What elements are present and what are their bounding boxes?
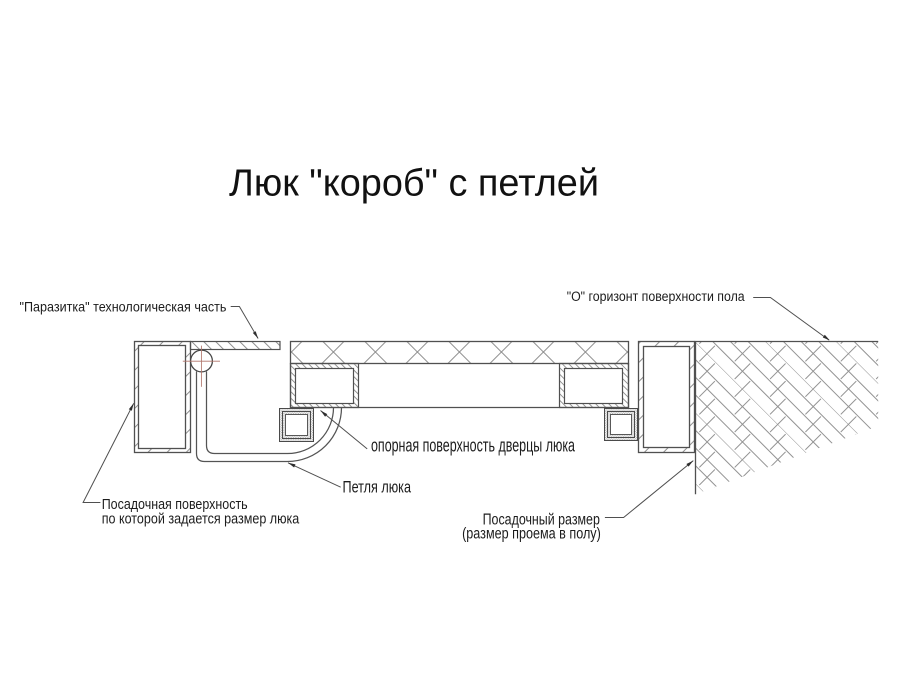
svg-text:"О" горизонт поверхности пола: "О" горизонт поверхности пола xyxy=(567,289,745,304)
svg-text:"Паразитка" технологическая ча: "Паразитка" технологическая часть xyxy=(20,299,227,315)
svg-text:Люк "короб" с петлей: Люк "короб" с петлей xyxy=(229,162,599,204)
svg-text:Петля люка: Петля люка xyxy=(343,479,412,497)
svg-text:опорная поверхность дверцы люк: опорная поверхность дверцы люка xyxy=(371,435,576,455)
svg-text:по которой задается размер люк: по которой задается размер люка xyxy=(102,511,300,528)
svg-text:(размер проема в полу): (размер проема в полу) xyxy=(462,526,601,543)
